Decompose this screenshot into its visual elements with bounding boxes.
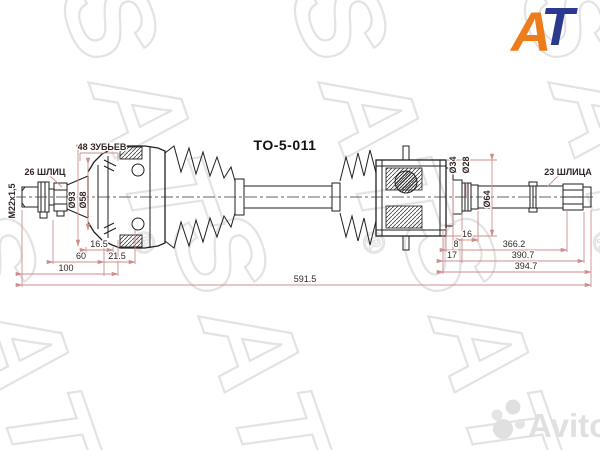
dim-16-5-label: 16.5 xyxy=(90,239,108,249)
dim-394-7-label: 394.7 xyxy=(515,261,538,271)
sat-watermark-text: SAT xyxy=(0,193,131,450)
dim-100-label: 100 xyxy=(58,263,73,273)
sat-at-logo: T A xyxy=(509,0,578,63)
sat-watermark-text: SAT xyxy=(143,193,361,450)
dia-28-label: Ø28 xyxy=(461,156,471,173)
dim-total-label: 591.5 xyxy=(294,274,317,284)
abs-teeth-label: 48 ЗУБЬЕВ xyxy=(78,142,127,152)
dim-17-label: 17 xyxy=(447,250,457,260)
outer-splines-label: 26 ШЛИЦ xyxy=(25,167,66,177)
inner-splines-label: 23 ШЛИЦА xyxy=(544,167,592,177)
tripod-detail xyxy=(386,206,422,228)
dim-366-2-label: 366.2 xyxy=(503,239,526,249)
driveshaft-technical-drawing: SAT ® SAT ® SAT ® SAT ® SAT ® SAT ® SAT xyxy=(0,0,600,450)
dia-64-label: Ø64 xyxy=(482,190,492,207)
dia-34-label: Ø34 xyxy=(448,156,458,173)
thread-size-label: M22x1,5 xyxy=(7,183,17,218)
dim-390-7-label: 390.7 xyxy=(512,250,535,260)
avito-watermark-text: Avito xyxy=(528,407,600,444)
listing-photo: SAT ® SAT ® SAT ® SAT ® SAT ® SAT ® SAT xyxy=(0,0,600,450)
abs-tone-ring-bottom xyxy=(120,235,142,247)
roller-detail xyxy=(395,171,417,193)
circlip-detail xyxy=(529,208,537,212)
dia-58-label: Ø58 xyxy=(78,191,88,208)
circlip-detail xyxy=(529,182,537,186)
dia-93-label: Ø93 xyxy=(67,191,77,208)
dim-60-label: 60 xyxy=(76,251,86,261)
part-number-label: TO-5-011 xyxy=(254,137,317,153)
avito-watermark: Avito xyxy=(492,400,600,445)
dim-21-5-label: 21.5 xyxy=(108,251,126,261)
dim-16-label: 16 xyxy=(462,229,472,239)
dim-8-label: 8 xyxy=(453,239,458,249)
at-logo-letter-a: A xyxy=(509,0,551,63)
